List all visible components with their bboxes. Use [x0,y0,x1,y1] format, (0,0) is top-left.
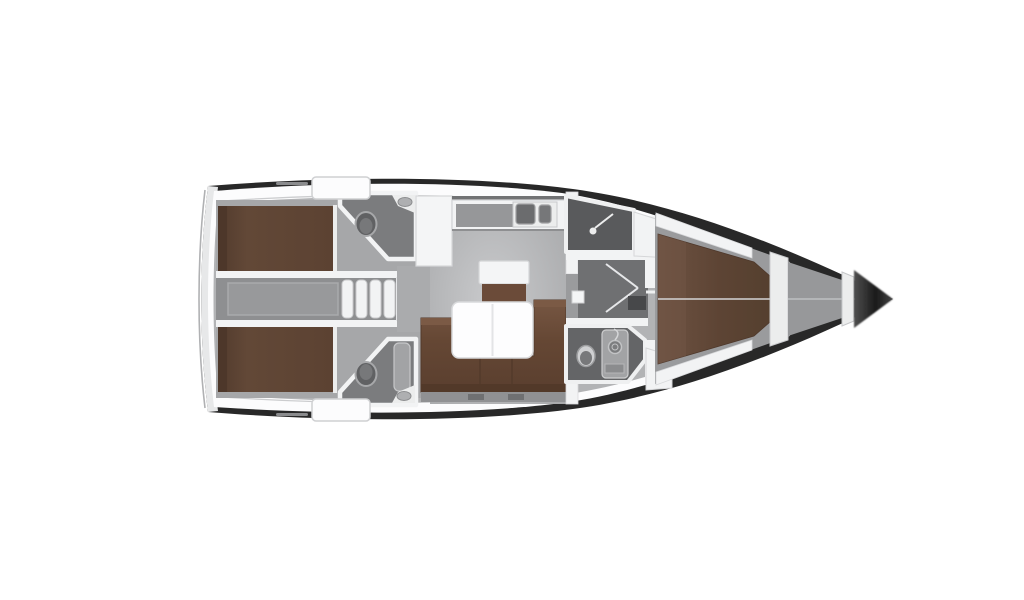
deck-vent-top [276,182,308,185]
shelf-box-2 [508,394,524,400]
deck-hatch-aft-top [312,177,370,199]
forward-bulkhead [770,252,788,346]
sink-icon [398,198,412,207]
companionway-steps [342,277,399,321]
step-4 [384,280,395,318]
toilet-bowl-inner [360,364,373,380]
galley-counter-surface [456,204,513,227]
sofa-back-shelf [421,392,567,402]
floorplan-canvas [0,0,1024,600]
sofa-arm-cap-right [534,300,566,307]
salon [397,196,567,404]
sofa-arm-cap-left [421,318,452,325]
aft-cabin-port-bed-headboard [218,206,227,277]
yacht-floorplan-page [0,0,1024,600]
doorway-jamb-box [572,291,584,303]
aft-cabin-port-bed-edge [333,205,337,278]
shower-column-tray [605,364,624,373]
corridor-wall-bottom [216,320,402,327]
wardrobe-column [416,196,452,266]
deck-hatch-aft-bottom [312,399,370,421]
galley-sink-right [539,205,551,223]
toilet-bowl-inner [360,218,373,234]
bow-bulkhead [842,272,854,326]
toilet-bowl-inner [580,351,592,365]
passage-locker-dark [628,296,646,310]
aft-cabin-port-bed [218,206,334,277]
step-1 [342,280,353,318]
corridor-wall-top [216,271,402,278]
aft-cabin-starboard-bed-edge [333,320,337,393]
engine-hatch [228,283,338,315]
step-3 [370,280,381,318]
shower-hose-spiral [609,341,622,354]
step-2 [356,280,367,318]
sink-icon [397,392,411,401]
center-cabinet-top [479,261,529,284]
shower-column-icon [394,343,410,391]
shelf-box-1 [468,394,484,400]
aft-cabin-starboard-bed-headboard [218,321,227,392]
aft-cabin-starboard-bed [218,321,334,392]
galley-sink-left [516,204,535,224]
sofa-backrest [421,384,566,392]
galley-counter-edge [452,229,566,231]
deck-vent-bottom [276,413,308,416]
